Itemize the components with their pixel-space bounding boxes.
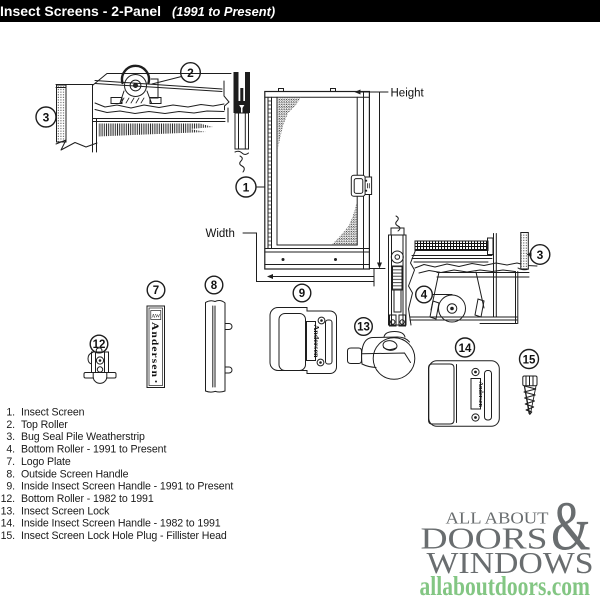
svg-text:Andersen: Andersen [149, 322, 159, 378]
svg-text:Bottom Roller - 1982 to 1991: Bottom Roller - 1982 to 1991 [21, 493, 154, 505]
svg-text:14: 14 [459, 343, 472, 355]
svg-text:Top Roller: Top Roller [21, 419, 68, 431]
svg-text:Insect Screen Lock: Insect Screen Lock [21, 505, 110, 517]
svg-text:2.: 2. [6, 419, 15, 431]
svg-text:Width: Width [206, 228, 235, 240]
svg-text:3.: 3. [6, 431, 15, 443]
svg-text:Bug Seal Pile Weatherstrip: Bug Seal Pile Weatherstrip [21, 431, 145, 443]
svg-text:Logo Plate: Logo Plate [21, 456, 71, 468]
svg-text:7: 7 [153, 285, 159, 297]
svg-text:9.: 9. [6, 481, 15, 493]
svg-text:8.: 8. [6, 468, 15, 480]
svg-text:15.: 15. [1, 530, 15, 542]
svg-text:Andersen: Andersen [312, 325, 319, 358]
svg-text:1: 1 [243, 180, 250, 194]
svg-text:8: 8 [211, 280, 218, 292]
svg-text:15: 15 [523, 354, 536, 366]
svg-text:9: 9 [299, 288, 305, 300]
svg-text:12: 12 [93, 339, 106, 351]
svg-text:12.: 12. [1, 493, 15, 505]
svg-text:(1991 to Present): (1991 to Present) [172, 4, 275, 19]
svg-text:1.: 1. [6, 407, 15, 419]
svg-text:3: 3 [537, 248, 544, 262]
svg-text:Outside Screen Handle: Outside Screen Handle [21, 468, 129, 480]
svg-text:Insect Screens - 2-Panel: Insect Screens - 2-Panel [0, 3, 161, 19]
svg-text:allaboutdoors.com: allaboutdoors.com [420, 571, 591, 600]
svg-text:4.: 4. [6, 444, 15, 456]
svg-text:3: 3 [43, 110, 50, 124]
svg-text:Inside Insect Screen Handle -: Inside Insect Screen Handle - 1982 to 19… [21, 518, 221, 530]
svg-text:Inside Insect Screen Handle -: Inside Insect Screen Handle - 1991 to Pr… [21, 481, 233, 493]
svg-text:2: 2 [187, 66, 194, 80]
svg-text:Bottom Roller - 1991 to Presen: Bottom Roller - 1991 to Present [21, 444, 166, 456]
svg-text:Insect Screen Lock Hole Plug -: Insect Screen Lock Hole Plug - Fillister… [21, 530, 227, 542]
svg-text:Height: Height [391, 88, 425, 100]
svg-text:AW: AW [151, 314, 161, 320]
svg-text:Andersen: Andersen [477, 382, 484, 408]
svg-text:4: 4 [421, 290, 428, 302]
svg-text:14.: 14. [1, 518, 15, 530]
svg-text:13.: 13. [1, 505, 15, 517]
svg-text:7.: 7. [6, 456, 15, 468]
svg-text:Insect Screen: Insect Screen [21, 407, 85, 419]
svg-text:13: 13 [357, 322, 370, 334]
